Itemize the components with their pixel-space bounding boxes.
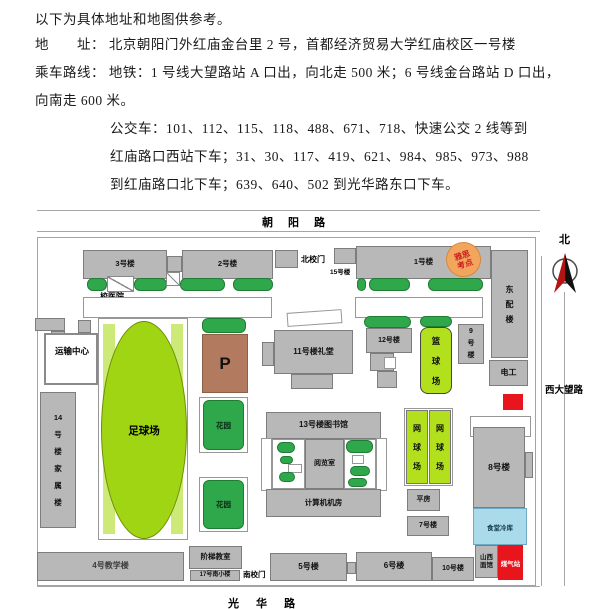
hall11-bottom-tab	[291, 374, 333, 389]
bush-strip	[369, 278, 410, 291]
building-12: 12号楼	[366, 328, 412, 353]
corner-block	[35, 318, 65, 331]
shanxi-noodle-shop: 山西 面馆	[475, 545, 498, 578]
road-xidawang-line2	[564, 292, 565, 586]
tennis-court-east: 网球场	[429, 410, 451, 484]
compass-north-label: 北	[559, 231, 570, 247]
tennis-court-west: 网球场	[406, 410, 428, 484]
electrician-room: 电工	[489, 360, 528, 386]
library-bush	[346, 440, 373, 453]
north-gate-west-block	[275, 250, 298, 268]
bush-strip	[233, 278, 273, 291]
building-6: 6号楼	[356, 552, 432, 581]
east-annex-building: 东配楼	[491, 250, 528, 358]
building-connector-2-3	[167, 256, 182, 272]
clinic-marker	[107, 276, 134, 292]
transport-center: 运输中心	[44, 333, 98, 385]
building-17-south: 17号南小楼	[190, 570, 240, 581]
reading-room: 阅览室	[305, 439, 344, 489]
building-5: 5号楼	[270, 553, 347, 581]
road-label-xidawang: 西大望路	[545, 381, 558, 400]
garden-upper: 花园	[203, 400, 244, 450]
doc-intro-line: 以下为具体地址和地图供参考。	[35, 8, 231, 28]
road-chaoyang-top-line	[37, 210, 540, 211]
hall11-left-tab	[262, 342, 274, 366]
building-3: 3号楼	[83, 250, 167, 279]
building-14-family: 14号楼家属楼	[40, 392, 76, 528]
gate-marker	[166, 272, 180, 286]
building-9: 9号楼	[458, 324, 484, 364]
document-page: 以下为具体地址和地图供参考。 地 址： 北京朝阳门外红庙金台里 2 号，首都经济…	[0, 0, 605, 609]
library-bush	[280, 456, 293, 464]
bush-strip	[134, 278, 167, 291]
garden-lower: 花园	[203, 480, 244, 529]
courtyard-west	[83, 297, 272, 318]
football-field-oval: 足球场	[101, 321, 187, 539]
library-pillar-west	[261, 438, 272, 491]
gas-station: 煤气站	[498, 545, 523, 580]
bungalow: 平房	[407, 489, 440, 511]
building-12-lower2	[377, 371, 397, 388]
computer-room: 计算机机房	[266, 489, 381, 517]
road-label-guanghua: 光 华 路	[228, 595, 302, 609]
teaching-building-4: 4号教学楼	[37, 552, 184, 581]
courtyard-east	[355, 297, 483, 318]
building-15	[334, 248, 356, 264]
campus-map: 朝 阳 路 光 华 路 西大望路 北 3号楼 2号楼 北校门 15号楼 1号楼 …	[0, 205, 605, 609]
doc-bus-line2: 红庙路口西站下车；31、30、117、419、621、984、985、973、9…	[110, 145, 529, 165]
library-steps	[352, 455, 364, 464]
library-bush	[348, 478, 367, 487]
red-block-north	[503, 394, 523, 410]
doc-route-line: 乘车路线： 地铁：1 号线大望路站 A 口出，向北走 500 米；6 号线金台路…	[35, 61, 560, 81]
bush-strip	[357, 278, 366, 291]
building-10: 10号楼	[432, 557, 474, 581]
road-chaoyang-bottom-line	[37, 231, 540, 232]
road-guanghua-line	[37, 586, 540, 587]
hall11-main: 11号楼礼堂	[274, 330, 353, 374]
doc-bus-line3: 到红庙路口北下车；639、640、502 到光华路东口下车。	[110, 173, 459, 193]
building-8: 8号楼	[473, 427, 525, 508]
building-12-bush	[364, 316, 411, 328]
library-bush	[279, 472, 295, 482]
bush-strip	[428, 278, 483, 291]
library-bush	[277, 442, 295, 453]
basketball-bush	[420, 316, 452, 327]
building-connector-5-6	[347, 562, 356, 574]
lecture-hall: 阶梯教室	[189, 546, 242, 569]
library-pillar-east	[376, 438, 387, 491]
building-2: 2号楼	[182, 250, 273, 279]
south-gate-label: 南校门	[243, 569, 266, 580]
basketball-court: 篮球场	[420, 327, 452, 394]
bush-strip	[180, 278, 225, 291]
parking-bush	[202, 318, 246, 333]
bush-strip	[87, 278, 107, 291]
road-xidawang-line1	[541, 256, 542, 586]
compass-icon	[548, 248, 584, 300]
building-15-label: 15号楼	[330, 266, 350, 276]
road-label-chaoyang: 朝 阳 路	[262, 214, 331, 230]
library-bush	[350, 466, 370, 476]
doc-route-line2: 向南走 600 米。	[35, 89, 135, 109]
building-8-tab	[525, 452, 533, 478]
parking-lot: P	[202, 334, 248, 393]
canteen-cold-storage: 食堂冷库	[473, 508, 527, 545]
doc-bus-line1: 公交车：101、112、115、118、488、671、718、快速公交 2 线…	[110, 117, 528, 137]
building-12-notch	[384, 357, 396, 369]
building-7: 7号楼	[407, 516, 449, 536]
small-block	[78, 320, 91, 333]
north-gate-label: 北校门	[301, 254, 325, 265]
library-13: 13号楼图书馆	[266, 412, 381, 439]
doc-address-line: 地 址： 北京朝阳门外红庙金台里 2 号，首都经济贸易大学红庙校区一号楼	[35, 33, 516, 53]
